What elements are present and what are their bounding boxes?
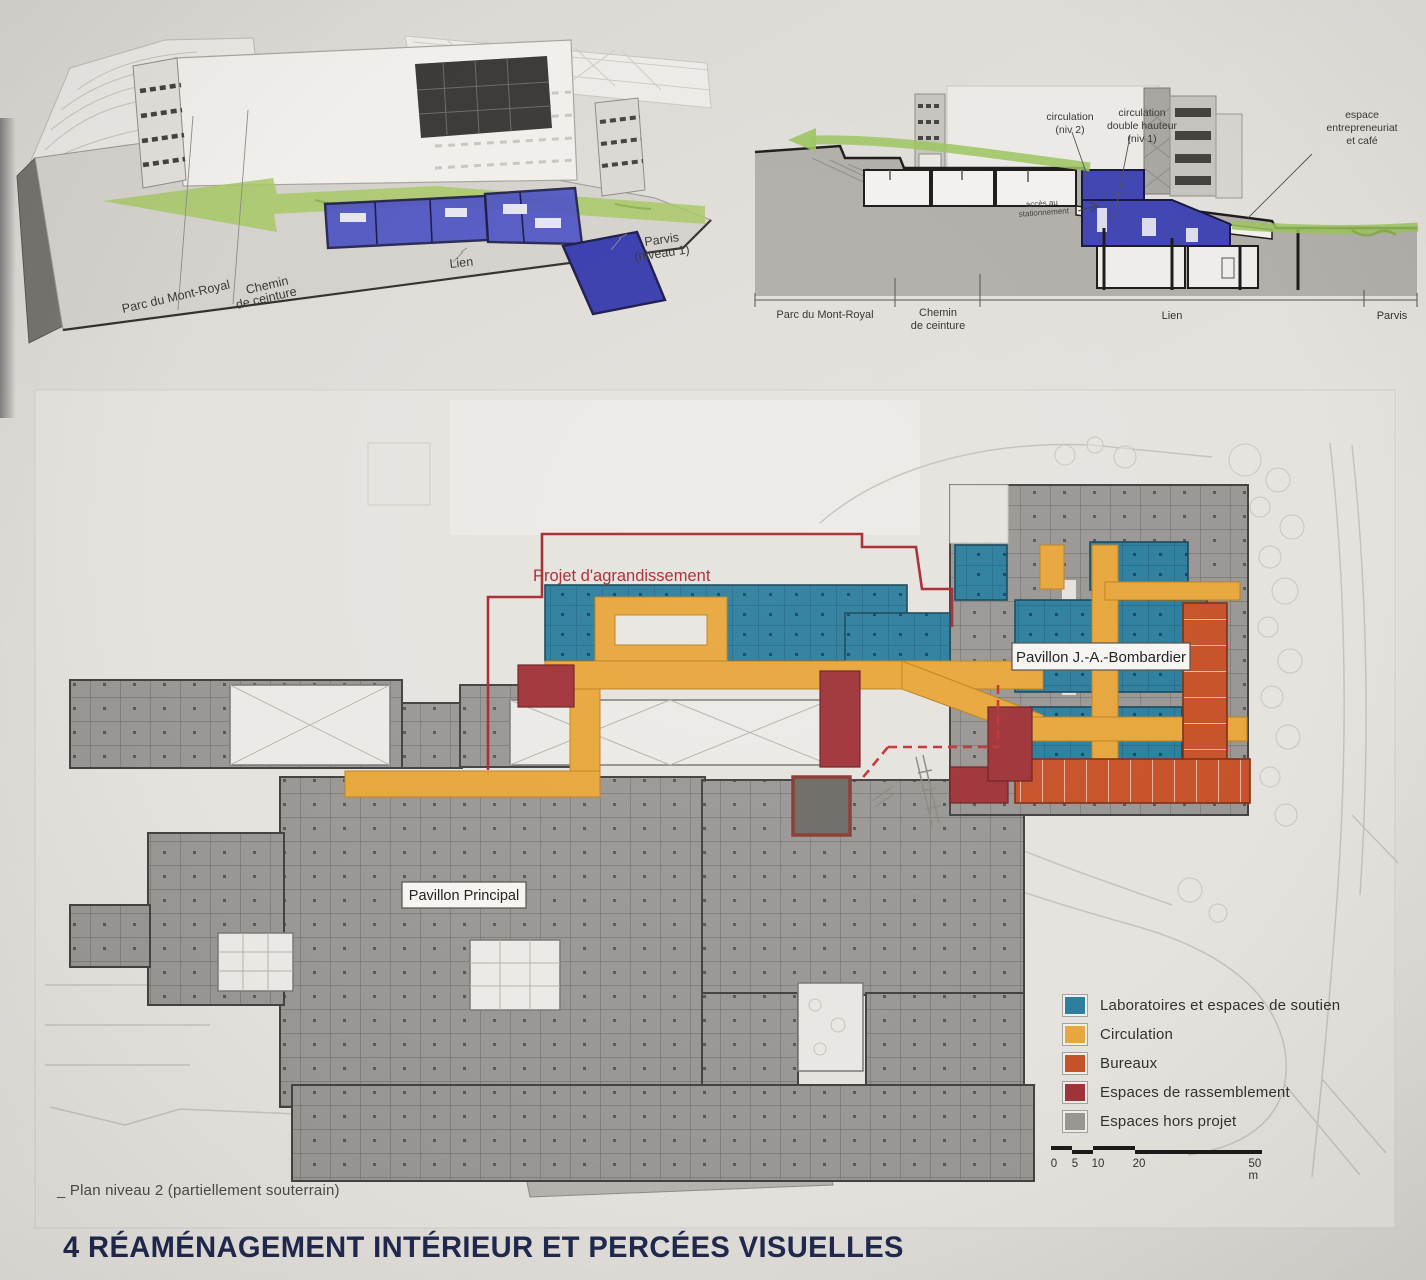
- legend-label: Laboratoires et espaces de soutien: [1100, 997, 1340, 1014]
- scale-tick: 10: [1092, 1158, 1105, 1170]
- legend-label: Espaces de rassemblement: [1100, 1084, 1290, 1101]
- legend-item-bureaux: Bureaux: [1063, 1049, 1340, 1078]
- legend-label: Espaces hors projet: [1100, 1113, 1236, 1130]
- legend-label: Circulation: [1100, 1026, 1173, 1043]
- label-circulation-double-c: (niv 1): [1127, 133, 1156, 145]
- scale-bar-ticks: 0 5 10 20 50 m: [1051, 1158, 1271, 1174]
- scale-tick: 0: [1051, 1158, 1057, 1170]
- axis-parc: Parc du Mont-Royal: [776, 309, 873, 321]
- plan-caption: _ Plan niveau 2 (partiellement souterrai…: [57, 1182, 340, 1199]
- label-pavillon-bombardier: Pavillon J.-A.-Bombardier: [1016, 649, 1186, 666]
- scale-tick: 20: [1133, 1158, 1146, 1170]
- circulation-ring-court: [615, 615, 707, 645]
- label-circulation-double: circulation: [1118, 107, 1165, 119]
- label-espace-c: et café: [1346, 135, 1378, 147]
- label-circulation-niv2-b: (niv 2): [1055, 124, 1084, 136]
- circulation-swatch: [1063, 1024, 1087, 1045]
- label-circulation-double-b: double hauteur: [1107, 120, 1178, 132]
- section-diagram: circulation (niv 2) circulation double h…: [752, 78, 1422, 353]
- axon-left-tower: [133, 58, 186, 188]
- pavilion-notch: [950, 485, 1008, 543]
- plan-light-patch: [450, 400, 920, 535]
- legend-item-hors-projet: Espaces hors projet: [1063, 1107, 1340, 1136]
- label-espace: espace: [1345, 109, 1379, 121]
- hors-projet-swatch: [1063, 1111, 1087, 1132]
- legend-label: Bureaux: [1100, 1055, 1157, 1072]
- section-right-wing: [1216, 114, 1242, 198]
- bureaux-swatch: [1063, 1053, 1087, 1074]
- axonometric-diagram: Parc du Mont-Royal Chemin de ceinture Li…: [15, 8, 725, 353]
- scale-bar-graphic: [1051, 1146, 1262, 1154]
- label-projet-agrandissement: Projet d'agrandissement: [533, 567, 711, 585]
- label-box-principal: Pavillon Principal: [402, 882, 526, 908]
- legend-item-circulation: Circulation: [1063, 1020, 1340, 1049]
- board-title: 4 RÉAMÉNAGEMENT INTÉRIEUR ET PERCÉES VIS…: [63, 1231, 904, 1265]
- scale-tick: 5: [1072, 1158, 1078, 1170]
- axon-right-tower: [595, 98, 645, 196]
- label-pavillon-principal: Pavillon Principal: [409, 888, 519, 904]
- rassemblement-swatch: [1063, 1082, 1087, 1103]
- label-circulation-niv2: circulation: [1046, 111, 1093, 123]
- axis-chemin-1: Chemin: [919, 307, 957, 319]
- legend-item-labs: Laboratoires et espaces de soutien: [1063, 991, 1340, 1020]
- axon-label-lien: Lien: [449, 255, 474, 271]
- axis-lien: Lien: [1162, 310, 1183, 322]
- label-box-bombardier: Pavillon J.-A.-Bombardier: [1012, 643, 1190, 670]
- axis-chemin-2: de ceinture: [911, 320, 965, 332]
- label-espace-b: entrepreneuriat: [1326, 122, 1397, 134]
- legend: Laboratoires et espaces de soutien Circu…: [1063, 991, 1340, 1136]
- labs-swatch: [1063, 995, 1087, 1016]
- axon-dark-facade: [415, 56, 552, 138]
- dark-court-square: [793, 777, 850, 835]
- axis-parvis: Parvis: [1377, 310, 1408, 322]
- photo-edge-shadow: [0, 118, 16, 418]
- scale-tick: 50 m: [1249, 1158, 1264, 1182]
- section-axis-labels: Parc du Mont-Royal Chemin de ceinture Li…: [776, 307, 1407, 332]
- legend-item-rassemblement: Espaces de rassemblement: [1063, 1078, 1340, 1107]
- scale-bar: 0 5 10 20 50 m: [1051, 1146, 1271, 1174]
